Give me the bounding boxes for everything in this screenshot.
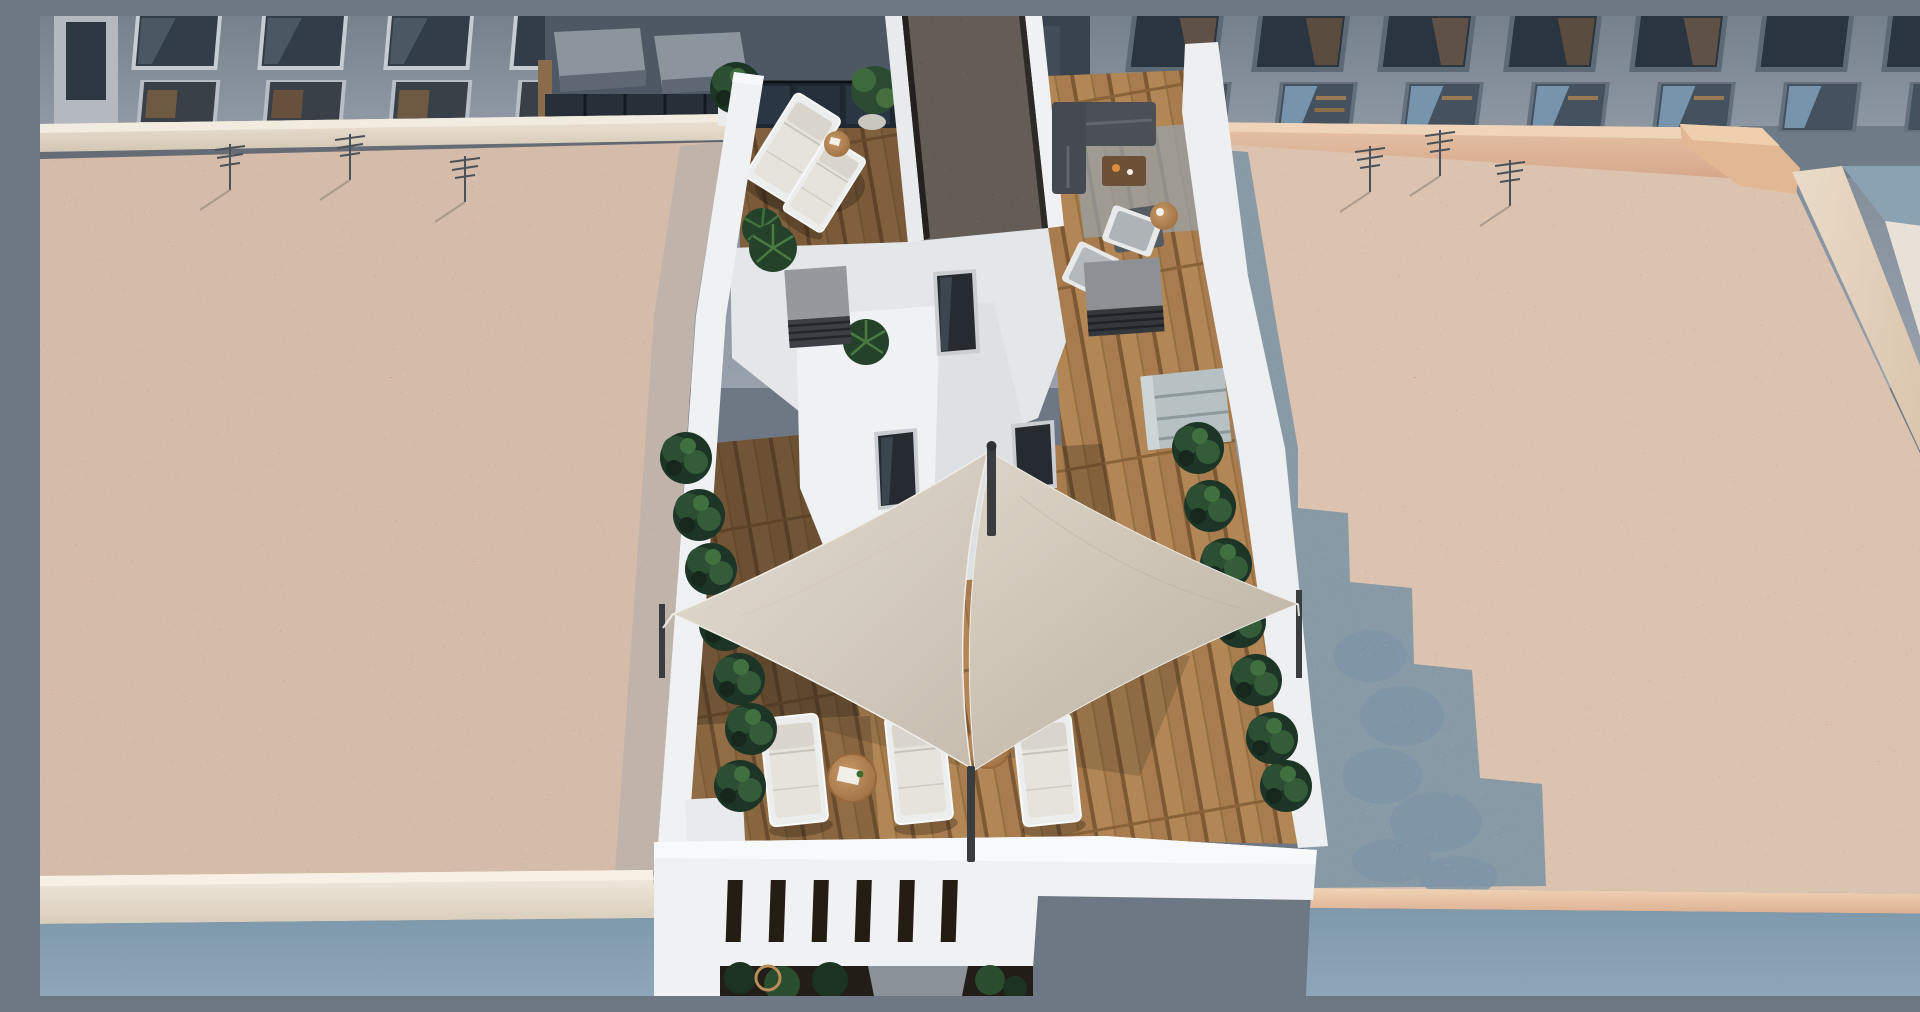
ac-unit bbox=[784, 266, 851, 348]
corner-post bbox=[659, 604, 665, 678]
window bbox=[131, 16, 222, 70]
awning-corner bbox=[868, 966, 968, 996]
left-gravel-roof bbox=[40, 114, 726, 996]
stair-core-roof-strip bbox=[885, 16, 1064, 244]
round-side-table bbox=[828, 754, 876, 802]
round-side-table bbox=[1150, 202, 1178, 230]
street-facade-below bbox=[40, 918, 660, 996]
potted-palm bbox=[749, 224, 797, 272]
penthouse-terrace bbox=[654, 16, 1328, 996]
window bbox=[1778, 82, 1862, 132]
sail-mast-bottom bbox=[967, 766, 975, 862]
window bbox=[1629, 16, 1728, 72]
bottom-parapet-pergola bbox=[654, 836, 1317, 996]
window bbox=[383, 16, 474, 70]
bulkhead-window bbox=[933, 269, 980, 356]
gravel-surface bbox=[40, 142, 724, 882]
ac-unit bbox=[1084, 257, 1165, 336]
window bbox=[1251, 16, 1350, 72]
window bbox=[1503, 16, 1602, 72]
sail-mast-top bbox=[987, 444, 996, 536]
balcony-canopy bbox=[554, 28, 646, 92]
window bbox=[263, 80, 347, 124]
coffee-table bbox=[1102, 156, 1146, 186]
window bbox=[1755, 16, 1854, 72]
window bbox=[389, 80, 473, 124]
rooftop-aerial-render bbox=[40, 16, 1920, 996]
window bbox=[137, 80, 221, 124]
window bbox=[1526, 82, 1610, 132]
window bbox=[66, 22, 106, 100]
window bbox=[1377, 16, 1476, 72]
street-facade-below bbox=[1306, 908, 1920, 996]
window bbox=[1652, 82, 1736, 132]
window bbox=[257, 16, 348, 70]
